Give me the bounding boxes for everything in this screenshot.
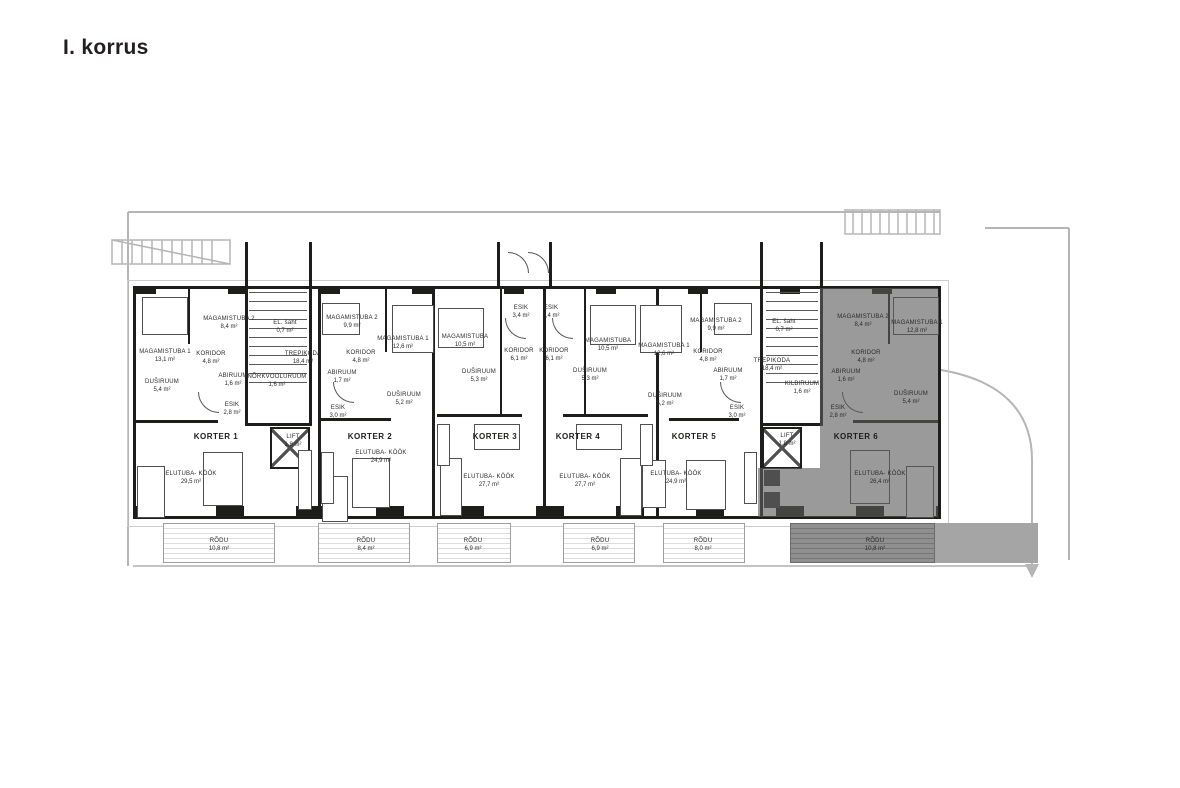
room-label-k2-abiruum: ABIRUUM 1,7 m² xyxy=(327,370,356,386)
room-label-k4-magamistuba: MAGAMISTUBA 10,5 m² xyxy=(585,338,632,354)
room-area: 0,7 m² xyxy=(273,328,297,336)
room-label-k6-rodu: RÕDU 10,8 m² xyxy=(865,538,885,554)
room-name: ELUTUBA- KÖÖK xyxy=(650,471,701,479)
room-name: DUŠIRUUM xyxy=(573,368,607,376)
sofa-furniture xyxy=(620,458,642,516)
room-label-k2-rodu: RÕDU 8,4 m² xyxy=(357,538,375,554)
room-label-k5-dusiruum: DUŠIRUUM 5,2 m² xyxy=(648,393,682,409)
room-label-k3-esik: ESIK 3,4 m² xyxy=(512,305,529,321)
room-label-k2-koridor: KORIDOR 4,8 m² xyxy=(346,350,375,366)
room-area: 5,4 m² xyxy=(145,387,179,395)
room-label-k1-magamistuba1: MAGAMISTUBA 1 13,1 m² xyxy=(139,349,191,365)
room-name: KORIDOR xyxy=(539,348,568,356)
entry-porch-wall xyxy=(820,242,823,286)
room-area: 1,6 m² xyxy=(785,389,819,397)
room-area: 1,7 m² xyxy=(327,378,356,386)
room-name: KORIDOR xyxy=(504,348,533,356)
room-name: ESIK xyxy=(329,405,346,413)
room-area: 10,8 m² xyxy=(865,546,885,554)
room-name: MAGAMISTUBA 2 xyxy=(690,318,742,326)
unit-label-korter3: KORTER 3 xyxy=(473,432,517,441)
room-label-k2-dusiruum: DUŠIRUUM 5,2 m² xyxy=(387,392,421,408)
room-area: 9,9 m² xyxy=(690,326,742,334)
entry-porch-wall xyxy=(245,242,248,286)
bed-furniture xyxy=(142,297,188,335)
room-name: ABIRUUM xyxy=(713,368,742,376)
room-area: 8,0 m² xyxy=(694,546,712,554)
room-label-k3-elutuba: ELUTUBA- KÖÖK 27,7 m² xyxy=(463,474,514,490)
room-label-k5-abiruum: ABIRUUM 1,7 m² xyxy=(713,368,742,384)
entry-porch-wall xyxy=(497,242,500,286)
room-label-k6-abiruum: ABIRUUM 1,6 m² xyxy=(831,369,860,385)
room-name: ESIK xyxy=(512,305,529,313)
room-name: TREPIKODA xyxy=(754,358,790,366)
room-name: NÕRKVOOLURUUM xyxy=(248,374,307,382)
room-label-west-lift: LIFT 1,8 m² xyxy=(284,434,301,450)
room-name: RÕDU xyxy=(865,538,885,546)
room-name: LIFT xyxy=(284,434,301,442)
bedroom-partition xyxy=(188,286,190,344)
room-area: 1,6 m² xyxy=(218,381,247,389)
floor-plan-canvas: I. korrus xyxy=(0,0,1180,788)
room-area: 3,0 m² xyxy=(329,413,346,421)
room-area: 8,4 m² xyxy=(203,324,255,332)
room-area: 12,6 m² xyxy=(377,344,429,352)
room-label-k1-koridor: KORIDOR 4,8 m² xyxy=(196,351,225,367)
room-label-k2-elutuba: ELUTUBA- KÖÖK 24,9 m² xyxy=(355,450,406,466)
room-label-k4-esik: ESIK 3,4 m² xyxy=(542,305,559,321)
room-area: 4,8 m² xyxy=(693,357,722,365)
balcony-korter6 xyxy=(790,523,935,563)
room-name: ABIRUUM xyxy=(218,373,247,381)
room-area: 10,8 m² xyxy=(209,546,229,554)
room-name: MAGAMISTUBA 1 xyxy=(377,336,429,344)
room-label-k3-koridor: KORIDOR 6,1 m² xyxy=(504,348,533,364)
room-area: 29,5 m² xyxy=(165,479,216,487)
kitchen-counter xyxy=(744,452,757,504)
room-area: 5,2 m² xyxy=(648,401,682,409)
kitchen-counter xyxy=(298,450,312,510)
unit-label-korter6: KORTER 6 xyxy=(834,432,878,441)
room-name: MAGAMISTUBA 1 xyxy=(891,320,943,328)
room-name: ABIRUUM xyxy=(831,369,860,377)
room-label-k6-koridor: KORIDOR 4,8 m² xyxy=(851,350,880,366)
room-label-east-kilbiruum: KILBIRUUM 1,6 m² xyxy=(785,381,819,397)
room-name: ELUTUBA- KÖÖK xyxy=(854,471,905,479)
room-name: ESIK xyxy=(223,402,240,410)
room-label-k1-magamistuba2: MAGAMISTUBA 2 8,4 m² xyxy=(203,316,255,332)
room-name: ELUTUBA- KÖÖK xyxy=(355,450,406,458)
room-name: KORIDOR xyxy=(196,351,225,359)
room-label-k5-esik: ESIK 3,0 m² xyxy=(728,405,745,421)
room-label-k6-magamistuba2: MAGAMISTUBA 2 8,4 m² xyxy=(837,314,889,330)
room-area: 6,1 m² xyxy=(539,356,568,364)
room-name: MAGAMISTUBA xyxy=(585,338,632,346)
room-label-k6-magamistuba1: MAGAMISTUBA 1 12,8 m² xyxy=(891,320,943,336)
room-area: 27,7 m² xyxy=(463,482,514,490)
room-area: 6,9 m² xyxy=(464,546,482,554)
room-area: 13,1 m² xyxy=(139,357,191,365)
kitchen-counter xyxy=(437,424,450,466)
room-area: 24,9 m² xyxy=(355,458,406,466)
room-label-k5-koridor: KORIDOR 4,8 m² xyxy=(693,349,722,365)
room-label-k6-elutuba: ELUTUBA- KÖÖK 26,4 m² xyxy=(854,471,905,487)
room-label-k4-dusiruum: DUŠIRUUM 5,3 m² xyxy=(573,368,607,384)
entry-porch-wall xyxy=(549,242,552,286)
room-label-k2-magamistuba2: MAGAMISTUBA 2 9,9 m² xyxy=(326,315,378,331)
room-label-k1-rodu: RÕDU 10,8 m² xyxy=(209,538,229,554)
terrace-extension xyxy=(935,523,1038,563)
room-area: 3,4 m² xyxy=(512,313,529,321)
room-area: 1,8 m² xyxy=(778,441,795,449)
unit-label-korter2: KORTER 2 xyxy=(348,432,392,441)
room-name: KILBIRUUM xyxy=(785,381,819,389)
room-area: 5,3 m² xyxy=(573,376,607,384)
stair-treads-west xyxy=(249,292,307,384)
room-area: 8,4 m² xyxy=(837,322,889,330)
room-name: MAGAMISTUBA 1 xyxy=(638,343,690,351)
room-name: MAGAMISTUBA xyxy=(442,334,489,342)
room-name: RÕDU xyxy=(694,538,712,546)
room-area: 5,3 m² xyxy=(462,377,496,385)
room-label-k5-rodu: RÕDU 8,0 m² xyxy=(694,538,712,554)
room-label-k2-esik: ESIK 3,0 m² xyxy=(329,405,346,421)
room-area: 12,6 m² xyxy=(638,351,690,359)
room-label-east-lift: LIFT 1,8 m² xyxy=(778,433,795,449)
room-label-k5-magamistuba2: MAGAMISTUBA 2 9,9 m² xyxy=(690,318,742,334)
highlight-overlay-korter6 xyxy=(758,468,820,517)
room-name: RÕDU xyxy=(357,538,375,546)
room-name: ESIK xyxy=(829,405,846,413)
room-area: 27,7 m² xyxy=(559,482,610,490)
entry-porch-wall xyxy=(760,242,763,286)
room-area: 9,9 m² xyxy=(326,323,378,331)
room-name: ELUTUBA- KÖÖK xyxy=(559,474,610,482)
room-label-east-trepikoda: TREPIKODA 18,4 m² xyxy=(754,358,790,374)
room-area: 2,8 m² xyxy=(223,410,240,418)
room-name: RÕDU xyxy=(209,538,229,546)
corridor-partition xyxy=(500,286,502,416)
room-name: RÕDU xyxy=(464,538,482,546)
interior-wall xyxy=(563,414,648,417)
room-label-east-elsaht: EL. šaht 0,7 m² xyxy=(772,319,796,335)
room-name: LIFT xyxy=(778,433,795,441)
room-label-k4-koridor: KORIDOR 6,1 m² xyxy=(539,348,568,364)
room-area: 26,4 m² xyxy=(854,479,905,487)
room-area: 3,4 m² xyxy=(542,313,559,321)
room-label-k4-rodu: RÕDU 6,9 m² xyxy=(591,538,609,554)
stairwell-west-wall xyxy=(245,423,312,426)
room-name: MAGAMISTUBA 2 xyxy=(837,314,889,322)
room-area: 1,6 m² xyxy=(831,377,860,385)
sofa-furniture xyxy=(440,458,462,516)
room-label-k1-esik: ESIK 2,8 m² xyxy=(223,402,240,418)
room-name: MAGAMISTUBA 2 xyxy=(326,315,378,323)
room-area: 4,8 m² xyxy=(346,358,375,366)
room-name: DUŠIRUUM xyxy=(462,369,496,377)
room-label-k5-magamistuba1: MAGAMISTUBA 1 12,6 m² xyxy=(638,343,690,359)
room-label-west-trepikoda: TREPIKODA 18,4 m² xyxy=(285,351,321,367)
sofa-furniture xyxy=(137,466,165,518)
room-area: 18,4 m² xyxy=(754,366,790,374)
exterior-stairs-east xyxy=(845,210,940,234)
unit-divider-wall xyxy=(543,286,546,519)
room-area: 10,5 m² xyxy=(585,346,632,354)
room-area: 2,8 m² xyxy=(829,413,846,421)
room-name: ESIK xyxy=(542,305,559,313)
unit-label-korter1: KORTER 1 xyxy=(194,432,238,441)
room-label-k6-esik: ESIK 2,8 m² xyxy=(829,405,846,421)
room-area: 12,8 m² xyxy=(891,328,943,336)
room-label-k6-dusiruum: DUŠIRUUM 5,4 m² xyxy=(894,391,928,407)
room-area: 24,9 m² xyxy=(650,479,701,487)
room-area: 5,2 m² xyxy=(387,400,421,408)
interior-wall xyxy=(437,414,522,417)
room-label-west-elsaht: EL. šaht 0,7 m² xyxy=(273,320,297,336)
room-area: 10,5 m² xyxy=(442,342,489,350)
room-label-west-norkvooluruum: NÕRKVOOLURUUM 1,6 m² xyxy=(248,374,307,390)
room-area: 1,7 m² xyxy=(713,376,742,384)
arrow-down-icon xyxy=(1025,564,1039,578)
kitchen-counter xyxy=(640,424,653,466)
room-area: 18,4 m² xyxy=(285,359,321,367)
room-name: ESIK xyxy=(728,405,745,413)
stairwell-west-wall xyxy=(245,286,248,426)
room-area: 1,8 m² xyxy=(284,442,301,450)
room-area: 0,7 m² xyxy=(772,327,796,335)
room-label-k1-dusiruum: DUŠIRUUM 5,4 m² xyxy=(145,379,179,395)
exterior-stairs-west xyxy=(112,240,230,264)
room-area: 4,8 m² xyxy=(851,358,880,366)
room-name: ABIRUUM xyxy=(327,370,356,378)
room-area: 8,4 m² xyxy=(357,546,375,554)
room-name: KORIDOR xyxy=(693,349,722,357)
room-name: MAGAMISTUBA 2 xyxy=(203,316,255,324)
room-name: ELUTUBA- KÖÖK xyxy=(165,471,216,479)
room-label-k1-elutuba: ELUTUBA- KÖÖK 29,5 m² xyxy=(165,471,216,487)
room-name: ELUTUBA- KÖÖK xyxy=(463,474,514,482)
room-name: EL. šaht xyxy=(273,320,297,328)
room-area: 6,1 m² xyxy=(504,356,533,364)
room-label-k2-magamistuba1: MAGAMISTUBA 1 12,6 m² xyxy=(377,336,429,352)
room-name: DUŠIRUUM xyxy=(648,393,682,401)
room-name: KORIDOR xyxy=(851,350,880,358)
room-name: TREPIKODA xyxy=(285,351,321,359)
room-name: EL. šaht xyxy=(772,319,796,327)
room-area: 5,4 m² xyxy=(894,399,928,407)
interior-wall xyxy=(133,420,218,423)
room-label-k4-elutuba: ELUTUBA- KÖÖK 27,7 m² xyxy=(559,474,610,490)
room-label-k3-magamistuba: MAGAMISTUBA 10,5 m² xyxy=(442,334,489,350)
room-area: 1,6 m² xyxy=(248,382,307,390)
room-area: 3,0 m² xyxy=(728,413,745,421)
room-name: DUŠIRUUM xyxy=(387,392,421,400)
room-name: MAGAMISTUBA 1 xyxy=(139,349,191,357)
room-name: RÕDU xyxy=(591,538,609,546)
entry-porch-wall xyxy=(309,242,312,286)
room-label-k3-rodu: RÕDU 6,9 m² xyxy=(464,538,482,554)
room-area: 6,9 m² xyxy=(591,546,609,554)
room-label-k3-dusiruum: DUŠIRUUM 5,3 m² xyxy=(462,369,496,385)
unit-label-korter4: KORTER 4 xyxy=(556,432,600,441)
room-label-k1-abiruum: ABIRUUM 1,6 m² xyxy=(218,373,247,389)
room-name: DUŠIRUUM xyxy=(145,379,179,387)
room-area: 4,8 m² xyxy=(196,359,225,367)
stairwell-east-wall xyxy=(760,423,823,426)
room-label-k5-elutuba: ELUTUBA- KÖÖK 24,9 m² xyxy=(650,471,701,487)
unit-label-korter5: KORTER 5 xyxy=(672,432,716,441)
room-name: KORIDOR xyxy=(346,350,375,358)
room-name: DUŠIRUUM xyxy=(894,391,928,399)
kitchen-counter xyxy=(321,452,334,504)
